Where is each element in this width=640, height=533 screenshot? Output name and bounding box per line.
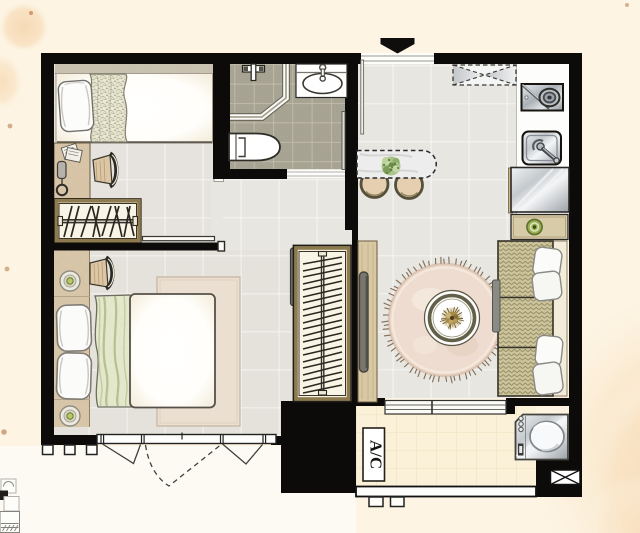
svg-text:A/C: A/C (367, 440, 386, 469)
